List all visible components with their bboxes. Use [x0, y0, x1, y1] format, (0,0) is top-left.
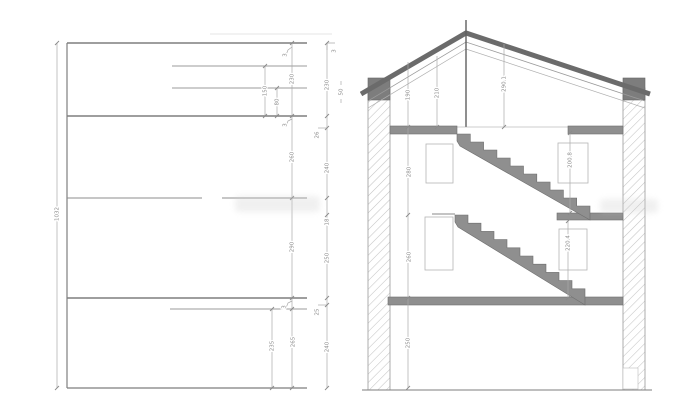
offset-chain-230: 230: [325, 79, 331, 90]
offset-chain-240b: 240: [325, 341, 331, 352]
dimension-lines: [57, 43, 341, 388]
section-dimension-ticks: [406, 125, 572, 390]
architectural-drawing-canvas: 1032 150 80 230 260 290 265 235 3 3 3 3 …: [0, 0, 700, 420]
lower-stair-flight: [455, 215, 585, 305]
dim-label-floor-250: 250: [406, 337, 412, 348]
dim-label-235: 235: [270, 340, 276, 351]
door-opening-lower-right: [559, 229, 587, 270]
dim-label-total-height: 1032: [55, 207, 61, 221]
watermark-smudge-right: [600, 199, 658, 213]
offset-chain-18: 18: [325, 218, 331, 225]
dim-label-150: 150: [263, 85, 269, 96]
tick-label-3-top: 3: [283, 53, 289, 57]
offset-chain-tick-label: 3: [332, 49, 338, 53]
dim-label-door-upper: 200.8: [568, 152, 574, 168]
dimension-ticks: [55, 41, 329, 390]
dim-label-roof-190: 190: [406, 89, 412, 100]
door-opening-upper-left: [426, 144, 453, 183]
attic-slab-right: [568, 126, 623, 134]
dim-label-chain-260: 260: [290, 151, 296, 162]
dim-label-80: 80: [275, 98, 281, 105]
tick-label-3-low: 3: [282, 305, 288, 309]
tick-label-3-mid: 3: [283, 123, 289, 127]
elevation-floor-lines: [67, 43, 307, 388]
offset-chain-26: 26: [315, 131, 321, 138]
right-wall-notch: [623, 368, 638, 389]
dim-label-chain-290: 290: [290, 241, 296, 252]
dim-label-roof-210: 210: [435, 87, 441, 98]
offset-chain-240a: 240: [325, 162, 331, 173]
section-dimension-lines: [408, 44, 570, 388]
dim-label-chain-265: 265: [291, 336, 297, 347]
door-opening-lower-left: [425, 217, 453, 270]
watermark-smudge-left: [235, 196, 320, 212]
ground-floor-slab: [388, 297, 623, 305]
offset-chain-25: 25: [315, 308, 321, 315]
offset-chain-top-hook: [327, 43, 335, 50]
dim-label-ridge-290-1: 290.1: [502, 76, 508, 92]
dim-label-chain-230: 230: [290, 73, 296, 84]
right-wall: [623, 88, 645, 390]
attic-slab-left: [390, 126, 457, 134]
dim-label-floor-260: 260: [407, 251, 413, 262]
note-label-50: 50: [339, 88, 345, 95]
offset-chain-250: 250: [325, 252, 331, 263]
left-wall: [368, 88, 390, 390]
dim-label-floor-280: 280: [407, 166, 413, 177]
dim-label-door-lower: 220.4: [566, 235, 572, 251]
